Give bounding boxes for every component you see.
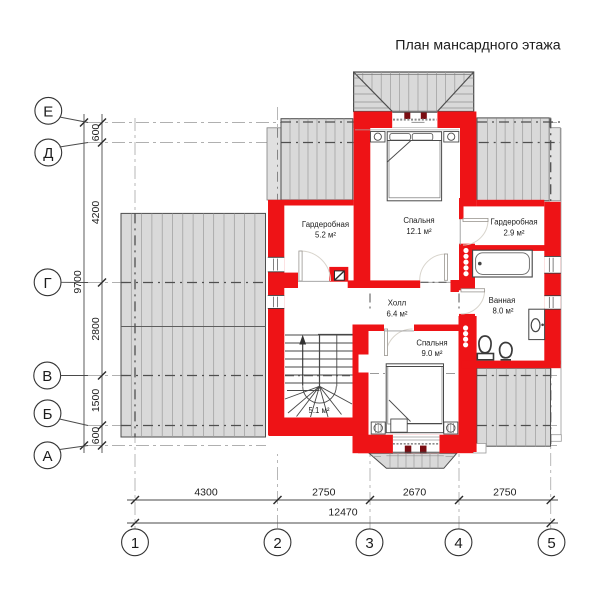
svg-text:9700: 9700	[72, 270, 84, 294]
svg-text:5.1 м²: 5.1 м²	[309, 406, 330, 415]
svg-text:2670: 2670	[403, 487, 427, 499]
svg-text:2.9 м²: 2.9 м²	[504, 229, 525, 238]
svg-text:4: 4	[454, 535, 462, 552]
svg-text:5: 5	[547, 535, 555, 552]
svg-text:1: 1	[131, 535, 139, 552]
svg-text:Холл: Холл	[388, 299, 407, 308]
svg-text:12470: 12470	[328, 507, 357, 519]
svg-text:4200: 4200	[90, 201, 102, 225]
svg-text:А: А	[42, 448, 52, 465]
svg-text:2800: 2800	[90, 317, 102, 341]
svg-text:2: 2	[273, 535, 281, 552]
svg-text:Д: Д	[43, 145, 53, 162]
svg-text:Гардеробная: Гардеробная	[302, 220, 349, 229]
svg-text:Спальня: Спальня	[416, 339, 447, 348]
svg-text:В: В	[42, 368, 52, 385]
svg-text:9.0 м²: 9.0 м²	[422, 349, 443, 358]
svg-text:8.0 м²: 8.0 м²	[493, 307, 514, 316]
svg-text:Е: Е	[43, 103, 53, 120]
svg-text:Гардеробная: Гардеробная	[490, 218, 537, 227]
svg-text:5.2 м²: 5.2 м²	[315, 231, 336, 240]
svg-text:600: 600	[90, 124, 102, 142]
svg-text:2750: 2750	[493, 487, 517, 499]
svg-text:2750: 2750	[312, 487, 336, 499]
svg-text:Спальня: Спальня	[403, 216, 434, 225]
svg-text:3: 3	[365, 535, 373, 552]
svg-text:4300: 4300	[194, 487, 218, 499]
svg-text:Г: Г	[44, 275, 52, 292]
svg-text:План мансардного этажа: План мансардного этажа	[395, 38, 561, 54]
svg-text:Ванная: Ванная	[489, 296, 516, 305]
svg-text:600: 600	[90, 427, 102, 445]
svg-text:1500: 1500	[90, 389, 102, 413]
svg-text:Б: Б	[43, 406, 53, 423]
svg-text:6.4 м²: 6.4 м²	[387, 310, 408, 319]
svg-text:12.1 м²: 12.1 м²	[406, 227, 432, 236]
